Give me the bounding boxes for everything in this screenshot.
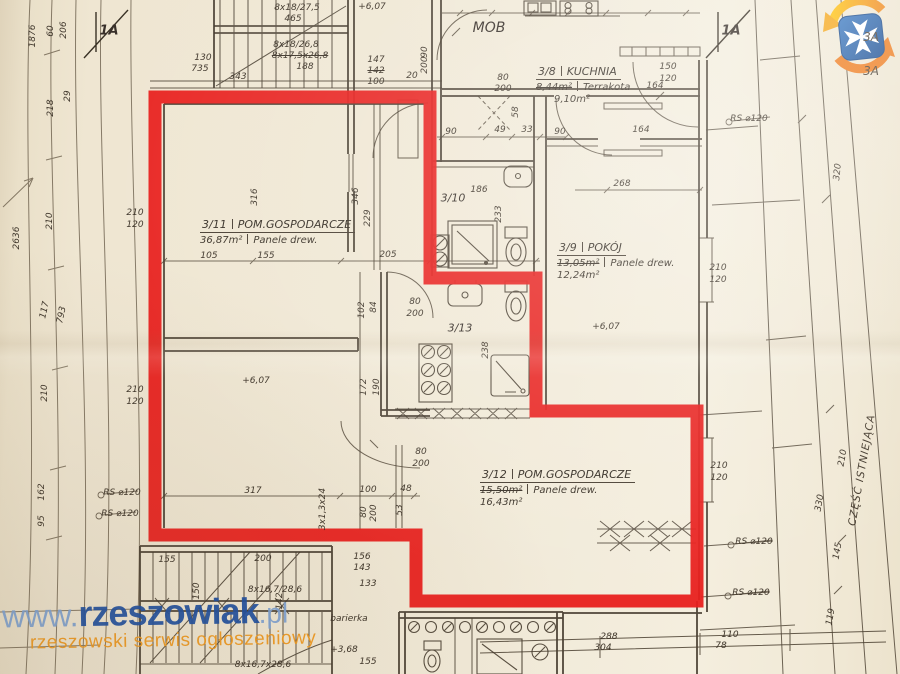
room-area-new: 9,10m² <box>536 93 630 105</box>
room-name: POKÓJ <box>588 241 622 254</box>
watermark-www: www. <box>2 597 79 634</box>
dim-label: 8x17,5x26,8 <box>272 51 328 61</box>
dim-label: 33 <box>521 125 532 135</box>
dim-label: 200 <box>412 459 429 469</box>
room-area-old: 8,44m² <box>536 82 572 93</box>
edge-label-3a-1: 3A <box>863 30 879 44</box>
room-label-mob: MOB <box>473 20 506 36</box>
room-name: POM.GOSPODARCZE <box>238 218 352 231</box>
dim-label: 53 <box>395 504 405 515</box>
dim-label: 110 <box>721 630 738 640</box>
dim-label: 210 <box>126 385 143 395</box>
dim-label: 316 <box>250 188 260 205</box>
floorplan-photo: 1876602062921826362102101201177932102101… <box>0 0 900 674</box>
dim-label: 130 <box>194 53 211 63</box>
dim-label: 320 <box>832 163 844 181</box>
dim-label: 100 <box>359 485 376 495</box>
dim-label: 20 <box>406 71 417 81</box>
dim-label: 8x18/26,8 <box>273 40 319 50</box>
dim-label: RS ⌀120 <box>732 588 769 598</box>
watermark-tld: .pl <box>258 598 288 630</box>
dim-label: 288 <box>600 632 617 642</box>
room-area: 36,87m² <box>200 235 242 246</box>
dim-label: +6,07 <box>358 2 386 12</box>
dim-label: 162 <box>37 483 47 500</box>
room-floor: Panele drew. <box>533 485 597 496</box>
room-floor: Terrakota <box>583 82 630 93</box>
dim-label: 155 <box>158 555 175 565</box>
dim-label: 120 <box>126 397 143 407</box>
room-label-3-8: 3/8KUCHNIA 8,44m²Terrakota 9,10m² <box>536 60 630 105</box>
room-label-3-10: 3/10 <box>441 192 466 205</box>
dim-label: 172 <box>359 378 369 395</box>
dim-label: 238 <box>481 341 491 358</box>
dim-label: 117 <box>38 301 51 320</box>
dim-label: 200 <box>494 84 511 94</box>
room-area-new: 16,43m² <box>480 496 635 508</box>
section-marker-1a-right: 1A <box>721 24 740 39</box>
dim-label: 58 <box>511 106 521 117</box>
room-id: 3/11 <box>202 218 227 231</box>
room-id: 3/8 <box>538 65 556 78</box>
separator <box>577 81 578 91</box>
watermark-name: rzeszowiak <box>78 590 259 634</box>
room-label-3-11: 3/11POM.GOSPODARCZE 36,87m²Panele drew. <box>200 213 355 246</box>
dim-label: 200 <box>420 56 430 73</box>
dim-label: 120 <box>709 275 726 285</box>
dim-label: RS ⌀120 <box>101 509 138 519</box>
dim-label: 188 <box>296 62 313 72</box>
edge-label-3a-2: 3A <box>863 64 879 78</box>
dim-label: 90 <box>554 127 565 137</box>
separator <box>232 219 233 229</box>
dim-label: 210 <box>837 449 850 468</box>
dim-label: 210 <box>45 212 55 229</box>
dim-label: 102 <box>357 301 367 318</box>
dim-label: 233 <box>494 205 504 222</box>
dim-label: RS ⌀120 <box>730 114 767 124</box>
dim-label: 465 <box>284 14 301 24</box>
dim-label: 105 <box>200 251 217 261</box>
dim-label: 133 <box>359 579 376 589</box>
dim-label: 210 <box>710 461 727 471</box>
dim-label: 147 <box>367 55 384 65</box>
dim-label: 210 <box>709 263 726 273</box>
dim-label: 1876 <box>28 25 38 48</box>
dim-label: 150 <box>659 62 676 72</box>
separator <box>512 469 513 479</box>
dim-label: 164 <box>632 125 649 135</box>
dim-label: 229 <box>363 209 373 226</box>
room-label-3-12: 3/12POM.GOSPODARCZE 15,50m²Panele drew. … <box>480 463 635 508</box>
dim-label: 143 <box>353 563 370 573</box>
room-area-old: 15,50m² <box>480 485 522 496</box>
room-floor: Panele drew. <box>610 258 674 269</box>
dim-label: 2636 <box>12 227 22 250</box>
section-marker-1a-left: 1A <box>99 24 118 39</box>
dim-label: 200 <box>254 554 271 564</box>
room-label-3-9: 3/9POKÓJ 13,05m²Panele drew. 12,24m² <box>557 236 674 281</box>
dim-label: 8x16,7x28,6 <box>235 660 291 670</box>
room-label-3-13: 3/13 <box>448 322 473 335</box>
dim-label: 95 <box>37 515 47 526</box>
dim-label: 164 <box>646 81 663 91</box>
room-name: KUCHNIA <box>567 65 617 78</box>
dim-label: 190 <box>372 378 382 395</box>
dim-label: 155 <box>359 657 376 667</box>
dim-label: 793 <box>55 306 68 325</box>
dim-label: 145 <box>832 542 845 561</box>
separator <box>604 257 605 267</box>
dim-label: 304 <box>594 643 611 653</box>
dim-label: 90 <box>445 127 456 137</box>
room-id: 3/12 <box>482 468 507 481</box>
dim-label: 80 <box>409 297 420 307</box>
separator <box>582 242 583 252</box>
dim-label: 206 <box>59 21 69 38</box>
dim-label: +6,07 <box>592 322 620 332</box>
dim-label: 60 <box>46 25 56 36</box>
dim-label: 210 <box>40 384 50 401</box>
room-area-new: 12,24m² <box>557 269 674 281</box>
dim-label: 8x18/27,5 <box>274 3 320 13</box>
dim-label: 84 <box>369 301 379 312</box>
dim-label: 268 <box>613 179 630 189</box>
dim-label: 156 <box>353 552 370 562</box>
dim-label: 735 <box>191 64 208 74</box>
room-floor: Panele drew. <box>253 235 317 246</box>
room-area-old: 13,05m² <box>557 258 599 269</box>
dim-label: 49 <box>494 125 505 135</box>
dim-label: 80 <box>497 73 508 83</box>
separator <box>527 484 528 494</box>
dim-label: 48 <box>400 484 411 494</box>
room-id: 3/9 <box>559 241 577 254</box>
dim-label: +3,68 <box>330 645 358 655</box>
dim-label: 205 <box>379 250 396 260</box>
dim-label: +6,07 <box>242 376 270 386</box>
room-name: POM.GOSPODARCZE <box>518 468 632 481</box>
dim-label: 78 <box>715 641 726 651</box>
dim-label: 29 <box>63 90 73 101</box>
dim-label: RS ⌀120 <box>735 537 772 547</box>
dim-label: 218 <box>46 99 56 116</box>
dim-label: RS ⌀120 <box>103 488 140 498</box>
dim-label: 330 <box>814 494 827 513</box>
dim-label: 80 <box>359 506 369 517</box>
dim-label: 120 <box>126 220 143 230</box>
dim-label: 343 <box>229 72 246 82</box>
dim-layer: 1876602062921826362102101201177932102101… <box>0 0 900 674</box>
dim-label: 200 <box>406 309 423 319</box>
dim-label: 155 <box>257 251 274 261</box>
dim-label: 80 <box>415 447 426 457</box>
separator <box>247 234 248 244</box>
dim-label: barierka <box>330 614 367 624</box>
dim-label: 200 <box>369 504 379 521</box>
dim-label: 120 <box>710 473 727 483</box>
dim-label: 317 <box>244 486 261 496</box>
dim-label: 346 <box>351 187 361 204</box>
dim-label: 119 <box>825 608 838 627</box>
dim-label: 186 <box>470 185 487 195</box>
dim-label: 3x1,3x24 <box>318 488 328 530</box>
dim-label: 100 <box>367 77 384 87</box>
separator <box>561 66 562 76</box>
dim-label: 210 <box>126 208 143 218</box>
dim-label: 142 <box>367 66 384 76</box>
